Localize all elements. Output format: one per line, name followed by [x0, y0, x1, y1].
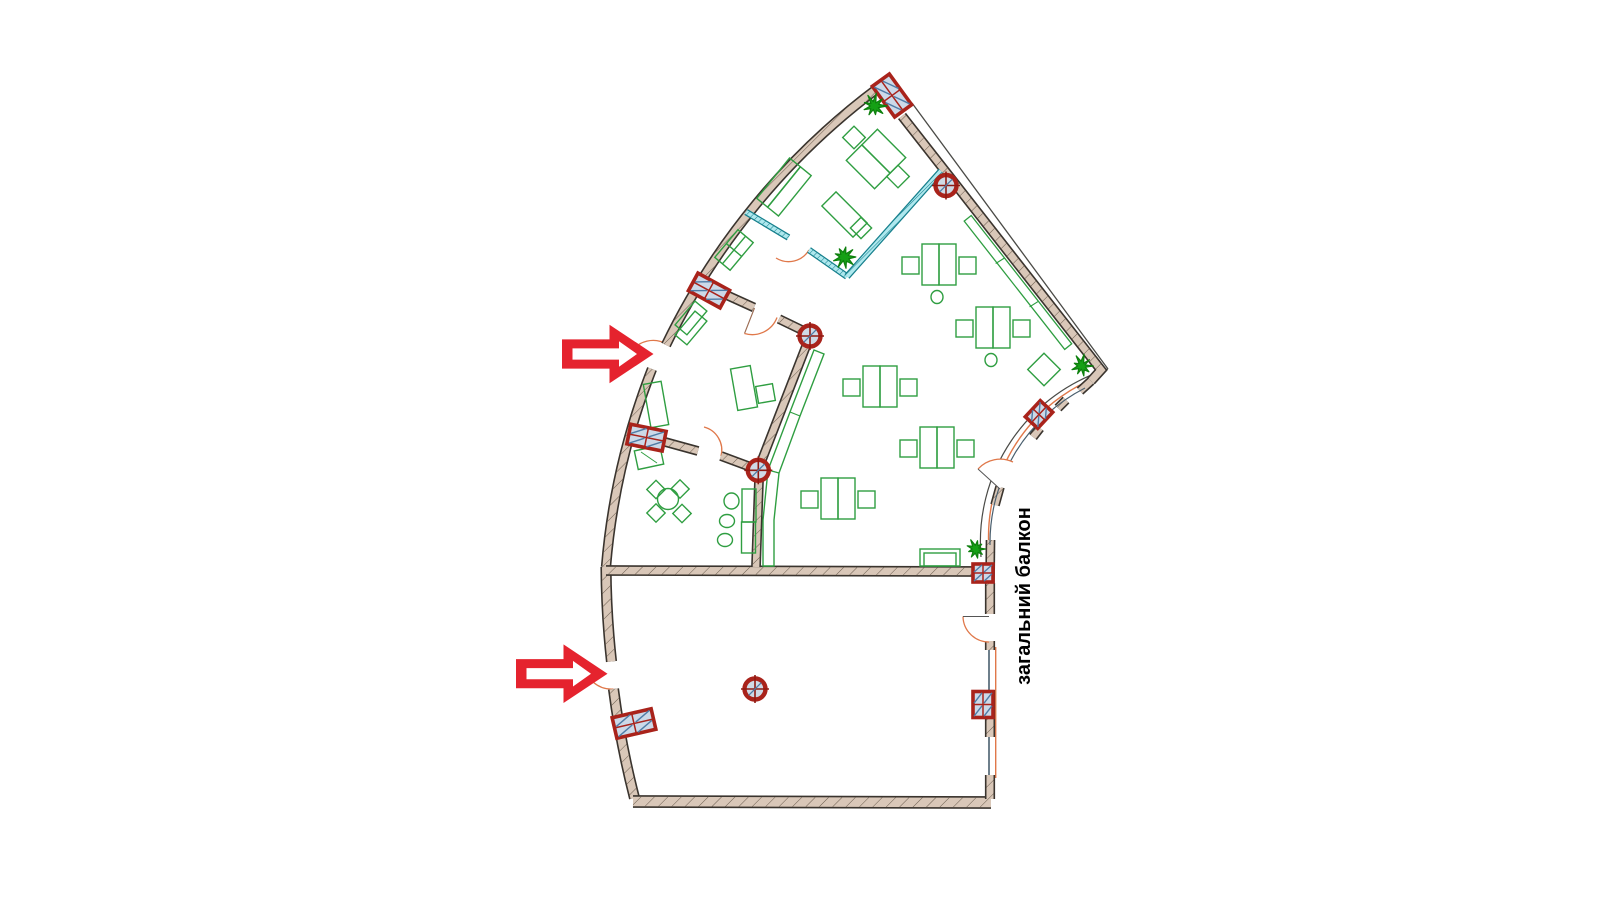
svg-text:загальний балкон: загальний балкон — [1013, 507, 1035, 685]
